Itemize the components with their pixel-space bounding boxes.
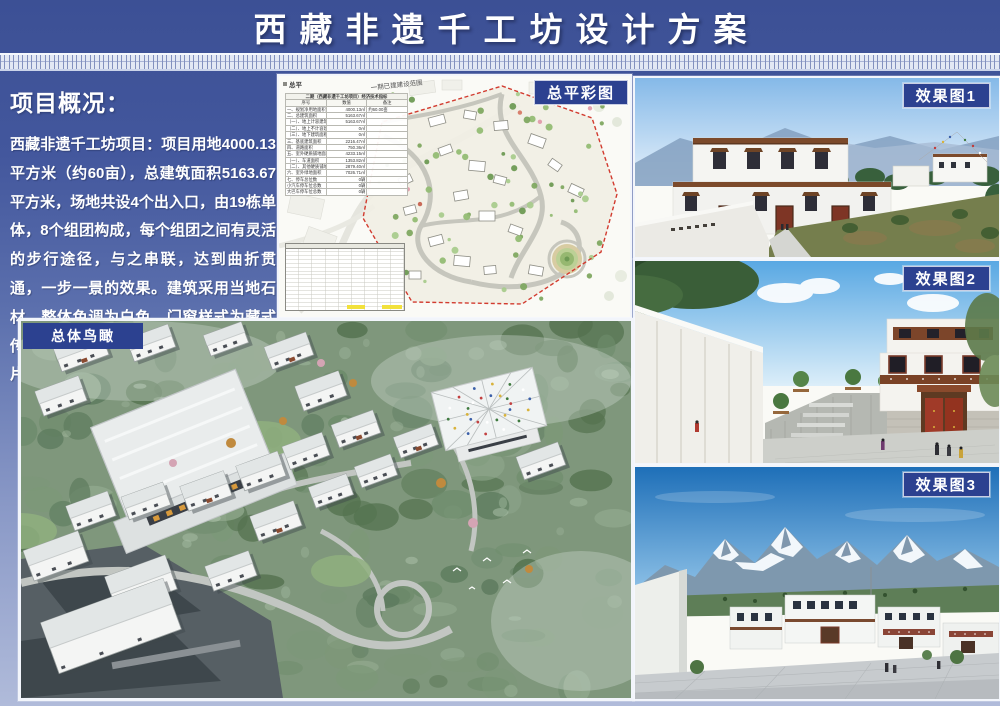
schedule-header-row — [286, 244, 404, 249]
overview-heading: 项目概况： — [10, 84, 276, 118]
title-bar: 西藏非遗千工坊设计方案 — [0, 0, 1000, 53]
render3-caption: 效果图3 — [903, 472, 990, 497]
poster-title: 西藏非遗千工坊设计方案 — [241, 3, 760, 51]
render3-panel: 效果图3 — [633, 465, 1000, 701]
economic-indicator-table: 二期（西藏非遗千工坊项目）经济技术指标序号数值备注一、规划净用地面积4000.1… — [285, 93, 408, 196]
render1-caption: 效果图1 — [903, 83, 990, 108]
schedule-highlight-cell — [347, 305, 365, 309]
schedule-highlight-cell — [382, 305, 402, 309]
render3-image — [635, 467, 999, 699]
building-area-schedule-table — [285, 243, 405, 311]
render2-caption: 效果图2 — [903, 266, 990, 291]
render1-panel: 效果图1 — [633, 76, 1000, 259]
render2-panel: 效果图2 — [633, 259, 1000, 465]
plan-corner-note: 总平 — [289, 80, 303, 89]
aerial-view-panel: 总体鸟瞰 — [18, 318, 634, 701]
aerial-caption: 总体鸟瞰 — [23, 323, 143, 349]
decorative-fret-band — [0, 53, 1000, 71]
site-plan-panel: 总平 一期已建建设范围 二期（西藏非遗千工坊项目）经济技术指标序号数值备注一、规… — [277, 74, 632, 319]
site-plan-caption: 总平彩图 — [534, 80, 628, 105]
aerial-view-image — [21, 321, 631, 698]
design-poster: 西藏非遗千工坊设计方案 项目概况： 西藏非遗千工坊项目：项目用地4000.13平… — [0, 0, 1000, 706]
render2-image — [635, 261, 999, 463]
